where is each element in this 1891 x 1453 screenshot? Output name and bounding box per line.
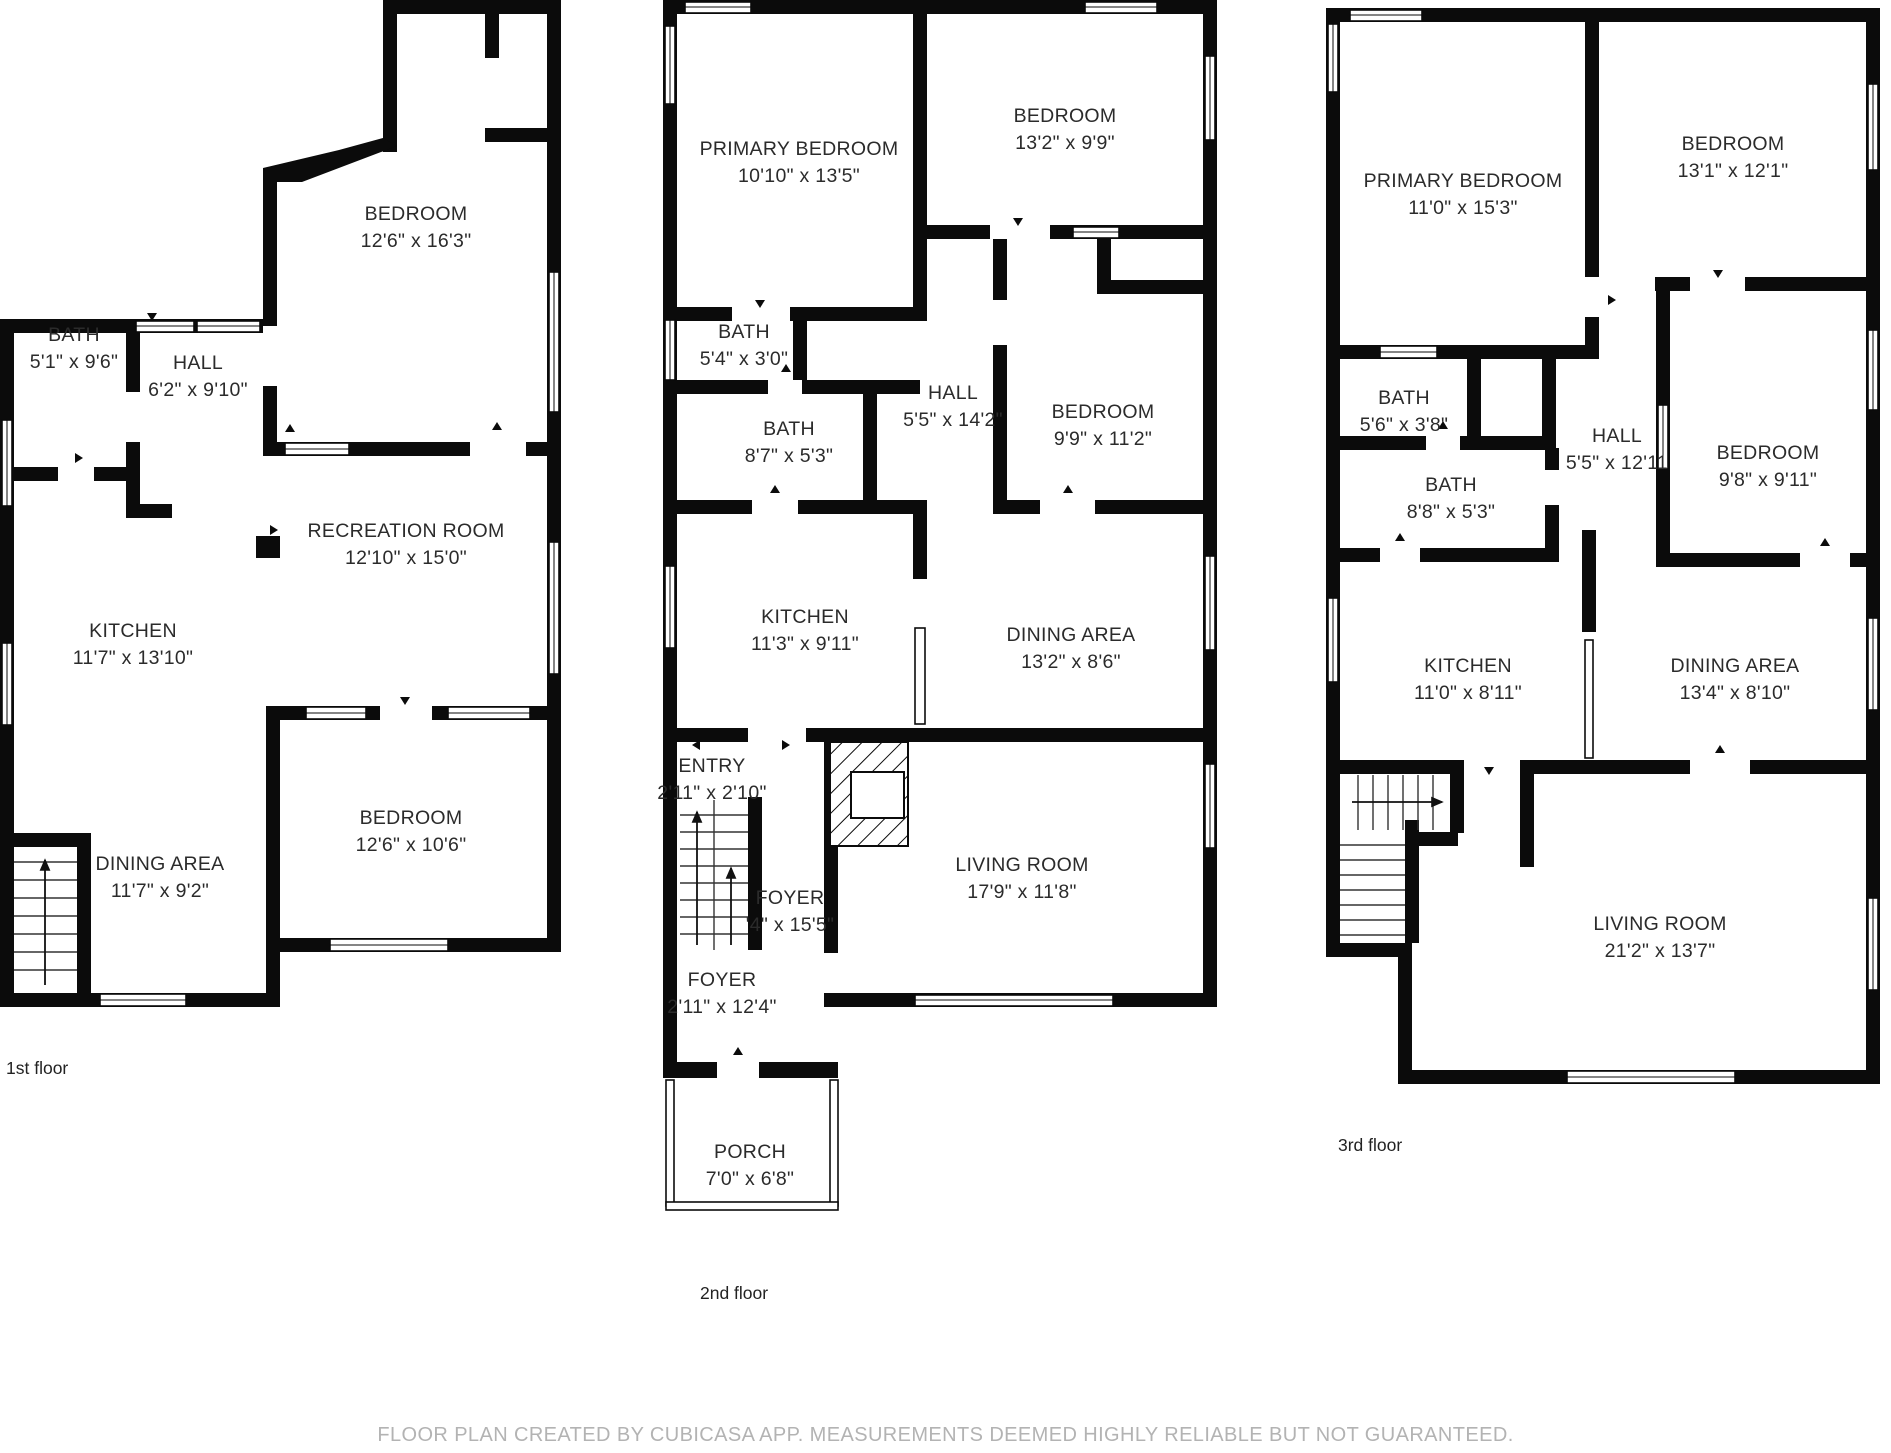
room-label-bedroom-f3-mid: BEDROOM9'8" x 9'11" <box>1717 440 1820 494</box>
room-label-entry-f2: ENTRY2'11" x 2'10" <box>657 753 766 807</box>
room-label-recreation-room-f1: RECREATION ROOM12'10" x 15'0" <box>308 518 505 572</box>
room-label-bedroom-f1-top: BEDROOM12'6" x 16'3" <box>361 201 472 255</box>
room-label-bath-small-f2: BATH5'4" x 3'0" <box>700 319 789 373</box>
room-label-hall-f2: HALL5'5" x 14'2" <box>903 380 1003 434</box>
footer-disclaimer: FLOOR PLAN CREATED BY CUBICASA APP. MEAS… <box>0 1424 1891 1447</box>
floor-label-1st: 1st floor <box>6 1058 68 1079</box>
room-label-bath-large-f2: BATH8'7" x 5'3" <box>745 416 834 470</box>
room-label-dining-area-f1: DINING AREA11'7" x 9'2" <box>96 851 225 905</box>
room-label-dining-area-f3: DINING AREA13'4" x 8'10" <box>1671 653 1800 707</box>
room-label-hall-f3: HALL5'5" x 12'11 <box>1566 423 1668 477</box>
floor-plan-canvas: BEDROOM12'6" x 16'3" BATH5'1" x 9'6" HAL… <box>0 0 1891 1453</box>
room-label-bedroom-f2-top: BEDROOM13'2" x 9'9" <box>1014 103 1117 157</box>
floor-plan-drawing <box>0 0 1891 1453</box>
floor-label-3rd: 3rd floor <box>1338 1135 1402 1156</box>
room-label-living-room-f3: LIVING ROOM21'2" x 13'7" <box>1593 911 1726 965</box>
room-label-living-room-f2: LIVING ROOM17'9" x 11'8" <box>955 852 1088 906</box>
room-label-kitchen-f3: KITCHEN11'0" x 8'11" <box>1414 653 1522 707</box>
room-label-dining-area-f2: DINING AREA13'2" x 8'6" <box>1007 622 1136 676</box>
room-label-hall-f1: HALL6'2" x 9'10" <box>148 350 248 404</box>
room-label-kitchen-f2: KITCHEN11'3" x 9'11" <box>751 604 859 658</box>
floor-label-2nd: 2nd floor <box>700 1283 768 1304</box>
room-label-foyer-upper-f2: FOYER'4" x 15'5" <box>746 885 835 939</box>
room-label-primary-bedroom-f3: PRIMARY BEDROOM11'0" x 15'3" <box>1364 168 1563 222</box>
room-label-bedroom-f2-mid: BEDROOM9'9" x 11'2" <box>1052 399 1155 453</box>
room-label-porch-f2: PORCH7'0" x 6'8" <box>706 1139 795 1193</box>
room-label-bath-f1: BATH5'1" x 9'6" <box>30 322 119 376</box>
room-label-bath-large-f3: BATH8'8" x 5'3" <box>1407 472 1496 526</box>
room-label-bedroom-f3-top: BEDROOM13'1" x 12'1" <box>1678 131 1789 185</box>
room-label-bedroom-f1-bottom: BEDROOM12'6" x 10'6" <box>356 805 467 859</box>
room-label-kitchen-f1: KITCHEN11'7" x 13'10" <box>73 618 194 672</box>
room-label-bath-small-f3: BATH5'6" x 3'8" <box>1360 385 1449 439</box>
room-label-foyer-lower-f2: FOYER2'11" x 12'4" <box>667 967 776 1021</box>
floor-1-walls <box>0 0 561 1007</box>
room-label-primary-bedroom-f2: PRIMARY BEDROOM10'10" x 13'5" <box>700 136 899 190</box>
